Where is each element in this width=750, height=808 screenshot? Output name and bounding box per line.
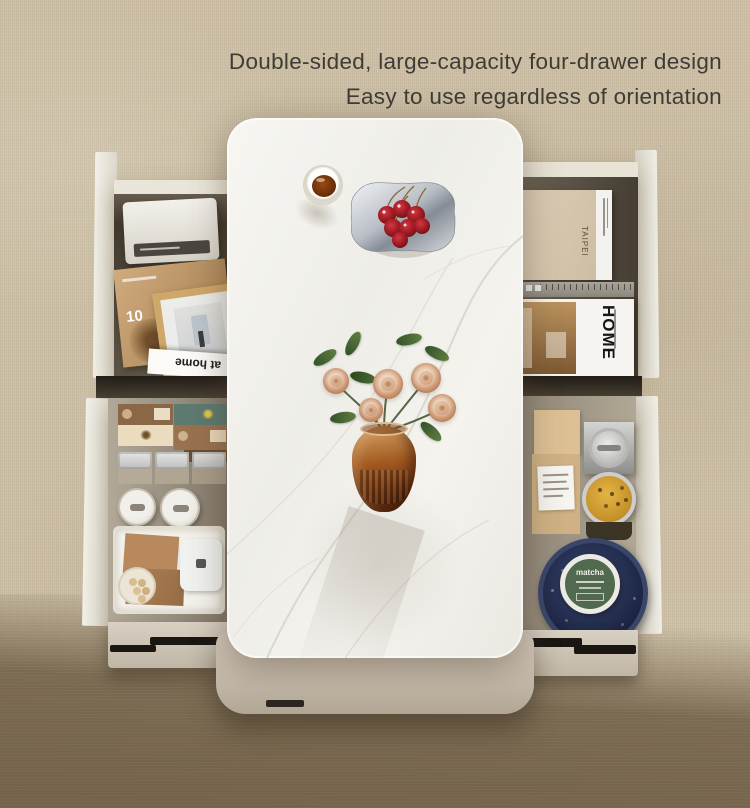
- canister-handle: [130, 504, 145, 511]
- drawer-interior: matcha: [510, 396, 636, 648]
- drawer-top-right: TAIPEI HOME: [510, 146, 660, 380]
- vase-rim: [360, 422, 408, 436]
- glass-of-tea: [303, 165, 343, 205]
- headline-line1: Double-sided, large-capacity four-drawer…: [229, 44, 722, 79]
- kraft-box: [534, 410, 580, 454]
- jar-lid: [192, 452, 226, 469]
- metal-canister: [584, 422, 634, 474]
- drawer-back-wall: [114, 180, 240, 194]
- storage-jar: [118, 452, 152, 484]
- tea-liquid: [312, 175, 336, 197]
- product-photo: Double-sided, large-capacity four-drawer…: [0, 0, 750, 808]
- book-spine-label: TAIPEI: [580, 226, 589, 257]
- tin-text-line: [576, 581, 604, 583]
- spine-text: [603, 198, 605, 236]
- spine-text: [607, 198, 608, 228]
- tea-box-floral-mark: [140, 430, 152, 440]
- window-highlight: [546, 332, 566, 358]
- drawer-bottom-right: matcha: [510, 396, 662, 676]
- drawer-back-wall: [510, 162, 638, 177]
- vase-ridges: [360, 470, 408, 504]
- rose: [428, 394, 456, 422]
- drawer-slot: [110, 645, 156, 652]
- round-canister: [118, 488, 156, 526]
- matcha-label: matcha: [565, 568, 615, 577]
- beige-book: TAIPEI: [516, 190, 612, 280]
- snack-balls: [129, 578, 137, 586]
- honey-jar: [582, 472, 636, 526]
- round-canister: [160, 488, 200, 528]
- headline-line2: Easy to use regardless of orientation: [229, 79, 722, 114]
- plate-pattern: [551, 589, 554, 592]
- tin-badge: [576, 593, 604, 601]
- tea-box-teal: [174, 404, 230, 425]
- canister-lid: [589, 428, 629, 468]
- storage-tray: [113, 526, 225, 614]
- tea-box-logo: [178, 431, 188, 441]
- drawer-interior: [108, 398, 242, 624]
- at-home-label: at home: [175, 356, 222, 373]
- kraft-box: [532, 454, 580, 534]
- magazine-masthead: [122, 276, 156, 283]
- storage-jar: [155, 452, 189, 484]
- ruler-ticks: [540, 284, 632, 290]
- drawer-bottom-left: [84, 396, 242, 672]
- silver-dish-with-cherries: [342, 170, 464, 264]
- tea-box-floral-mark: [202, 409, 214, 419]
- storage-jar: [192, 452, 226, 484]
- paper-note: [537, 465, 575, 510]
- brand-plate: [266, 700, 304, 707]
- tea-highlight: [316, 178, 325, 182]
- drawer-slot: [574, 645, 636, 654]
- rose: [323, 368, 349, 394]
- radio-display: [134, 240, 211, 257]
- rose: [411, 363, 441, 393]
- tea-box-label: [154, 408, 170, 420]
- book-spine: [596, 190, 612, 280]
- ruler: [514, 282, 634, 297]
- rose: [373, 369, 403, 399]
- drawer-interior: TAIPEI HOME: [510, 162, 638, 376]
- drawer-top-left: 10 at home: [94, 148, 242, 380]
- canister-handle: [173, 505, 189, 512]
- magazine-caption: [614, 309, 616, 349]
- snack-plate: [118, 567, 156, 605]
- white-box-logo: [196, 559, 206, 568]
- white-box: [180, 539, 222, 591]
- rose: [359, 398, 383, 422]
- lid-handle: [597, 445, 621, 451]
- matcha-tin: matcha: [560, 554, 620, 614]
- tin-text-line: [579, 587, 601, 589]
- home-magazine: HOME: [510, 299, 634, 377]
- headline: Double-sided, large-capacity four-drawer…: [229, 44, 722, 114]
- tea-box-brown2: [174, 425, 230, 450]
- tea-box-label: [210, 430, 226, 442]
- jar-lid: [155, 452, 189, 469]
- tea-box-logo: [122, 409, 132, 419]
- drawer-face-right: [635, 150, 659, 378]
- jar-lid: [118, 452, 152, 469]
- white-radio: [122, 198, 219, 265]
- tea-box-cream: [118, 425, 173, 446]
- tea-box-brown: [118, 404, 173, 425]
- honey-specks: [598, 488, 602, 492]
- radio-display-text: [140, 247, 180, 251]
- drawer-interior: 10 at home: [114, 180, 240, 378]
